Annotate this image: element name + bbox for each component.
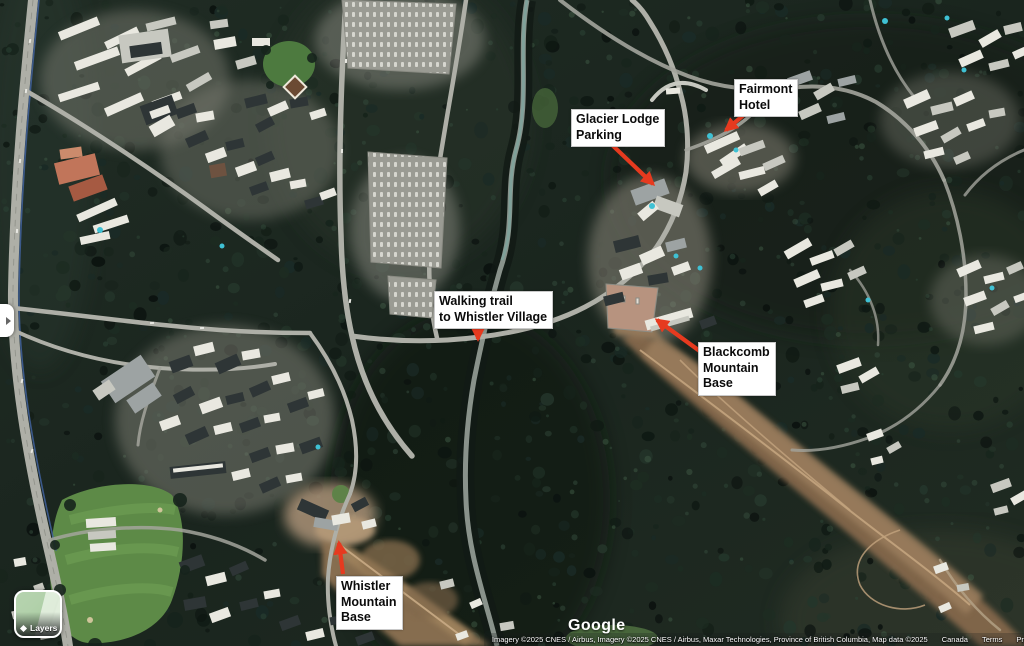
side-panel-expand-tab[interactable] — [0, 304, 14, 337]
chevron-right-icon — [6, 317, 11, 325]
layers-label: Layers — [30, 623, 57, 633]
annotation-text: Base — [703, 376, 770, 392]
attribution-imagery: Imagery ©2025 CNES / Airbus, Imagery ©20… — [492, 635, 928, 644]
terms-link[interactable]: Terms — [982, 635, 1002, 644]
annotation-text: Hotel — [739, 98, 792, 114]
layers-icon — [20, 625, 27, 632]
annotation-label-walking-trail: Walking trail to Whistler Village — [434, 291, 553, 329]
annotation-text: Whistler — [341, 579, 397, 595]
annotation-text: Fairmont — [739, 82, 792, 98]
annotation-label-glacier-lodge-parking: Glacier Lodge Parking — [571, 109, 665, 147]
annotation-text: to Whistler Village — [439, 310, 547, 326]
annotation-text: Mountain — [341, 595, 397, 611]
annotation-label-whistler-mountain-base: Whistler Mountain Base — [336, 576, 403, 630]
annotation-text: Walking trail — [439, 294, 547, 310]
privacy-link[interactable]: Privacy — [1016, 635, 1024, 644]
annotation-text: Blackcomb — [703, 345, 770, 361]
annotation-text: Parking — [576, 128, 659, 144]
annotation-label-blackcomb-mountain-base: Blackcomb Mountain Base — [698, 342, 776, 396]
map-canvas[interactable]: Fairmont Hotel Glacier Lodge Parking Wal… — [0, 0, 1024, 646]
annotation-text: Base — [341, 610, 397, 626]
annotation-text: Glacier Lodge — [576, 112, 659, 128]
attribution-bar: Imagery ©2025 CNES / Airbus, Imagery ©20… — [484, 633, 1024, 646]
attribution-region: Canada — [942, 635, 968, 644]
annotation-text: Mountain — [703, 361, 770, 377]
annotation-label-fairmont-hotel: Fairmont Hotel — [734, 79, 798, 117]
layers-button[interactable]: Layers — [14, 590, 62, 638]
